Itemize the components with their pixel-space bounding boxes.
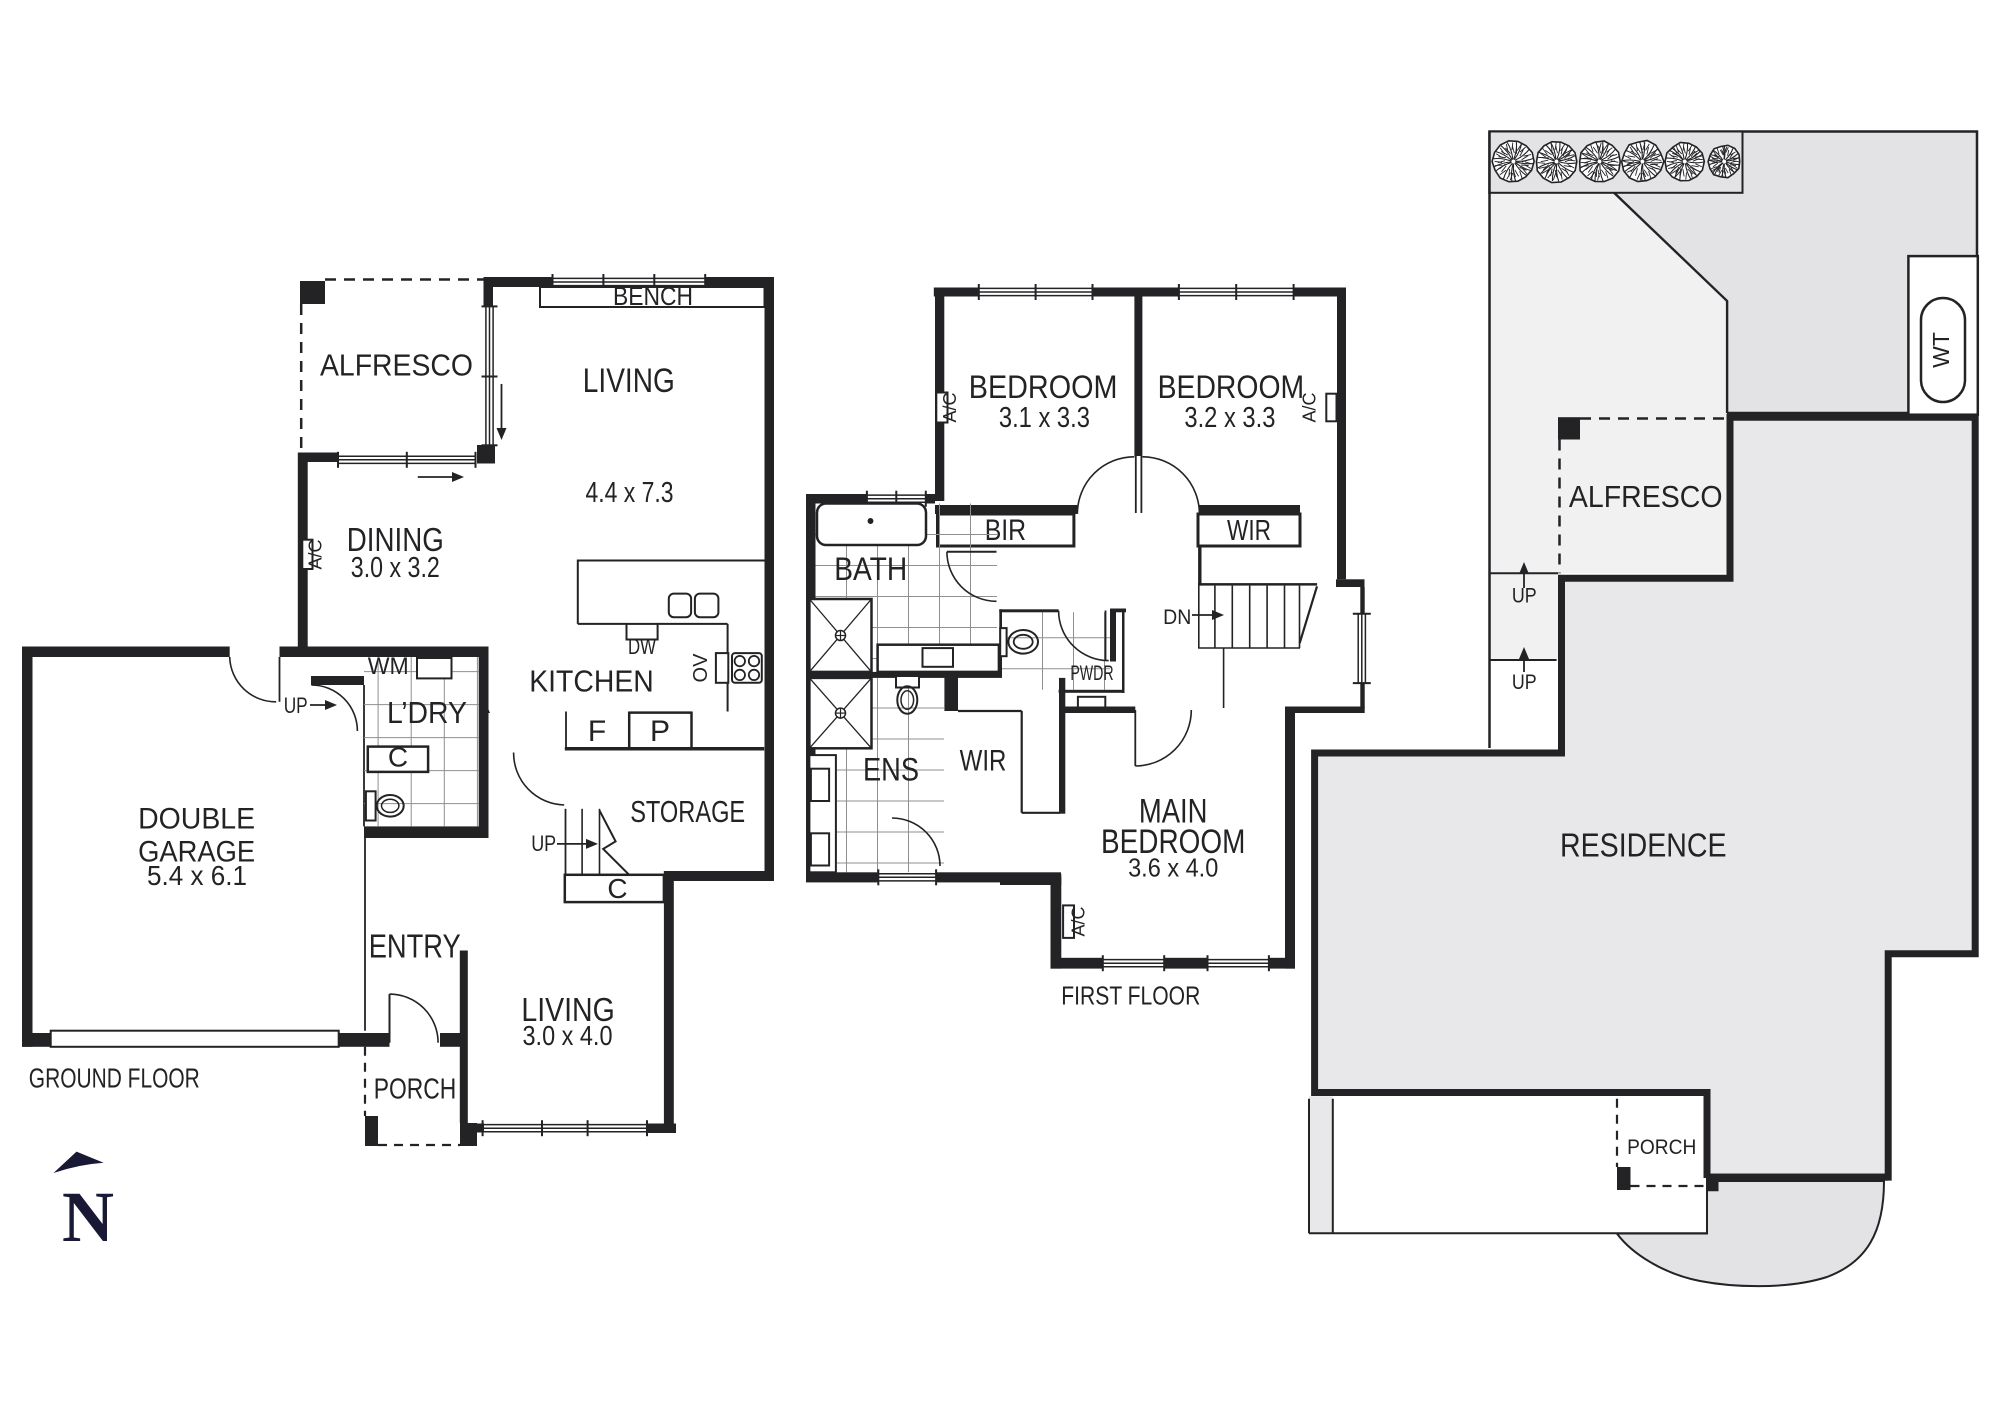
svg-text:ENTRY: ENTRY [369, 928, 461, 965]
svg-text:FIRST FLOOR: FIRST FLOOR [1061, 980, 1200, 1010]
svg-text:A/C: A/C [940, 392, 960, 422]
svg-text:BATH: BATH [834, 551, 907, 587]
svg-text:DOUBLE: DOUBLE [138, 802, 255, 835]
svg-text:5.4 x 6.1: 5.4 x 6.1 [147, 860, 247, 891]
svg-text:F: F [588, 715, 606, 748]
svg-text:GROUND FLOOR: GROUND FLOOR [29, 1063, 200, 1094]
svg-text:OV: OV [690, 653, 712, 683]
svg-text:ALFRESCO: ALFRESCO [1569, 480, 1723, 514]
svg-text:PWDR: PWDR [1070, 662, 1113, 685]
svg-text:PORCH: PORCH [374, 1074, 457, 1106]
svg-text:A/C: A/C [306, 539, 326, 569]
svg-text:UP: UP [284, 693, 308, 718]
svg-text:3.0 x 4.0: 3.0 x 4.0 [523, 1020, 613, 1051]
svg-text:LIVING: LIVING [583, 362, 675, 400]
svg-text:WT: WT [1928, 332, 1954, 368]
svg-text:PORCH: PORCH [1627, 1136, 1696, 1159]
svg-text:3.6 x 4.0: 3.6 x 4.0 [1128, 853, 1218, 883]
svg-text:WIR: WIR [1227, 515, 1271, 547]
svg-text:KITCHEN: KITCHEN [529, 664, 654, 699]
svg-text:ENS: ENS [863, 752, 919, 788]
svg-text:3.1 x 3.3: 3.1 x 3.3 [999, 402, 1090, 434]
svg-text:BEDROOM: BEDROOM [969, 369, 1118, 405]
svg-text:RESIDENCE: RESIDENCE [1560, 827, 1727, 864]
svg-text:BEDROOM: BEDROOM [1158, 369, 1305, 405]
svg-text:4.4 x 7.3: 4.4 x 7.3 [586, 477, 674, 509]
svg-text:P: P [650, 715, 670, 748]
svg-text:UP: UP [531, 831, 556, 856]
svg-text:BENCH: BENCH [613, 281, 693, 311]
svg-text:L’DRY: L’DRY [387, 695, 467, 730]
svg-text:WIR: WIR [960, 745, 1007, 778]
svg-text:A/C: A/C [1069, 906, 1089, 936]
svg-text:ALFRESCO: ALFRESCO [320, 349, 473, 383]
svg-text:STORAGE: STORAGE [630, 794, 745, 829]
svg-text:N: N [62, 1177, 114, 1257]
svg-text:WM: WM [368, 653, 409, 680]
svg-text:3.0 x 3.2: 3.0 x 3.2 [351, 552, 440, 584]
svg-text:BIR: BIR [985, 514, 1026, 547]
svg-text:DW: DW [628, 634, 656, 659]
svg-text:C: C [388, 742, 408, 773]
svg-text:3.2 x 3.3: 3.2 x 3.3 [1184, 402, 1275, 434]
svg-text:DN: DN [1163, 605, 1191, 629]
svg-text:C: C [607, 873, 627, 904]
svg-text:UP: UP [1512, 670, 1537, 694]
